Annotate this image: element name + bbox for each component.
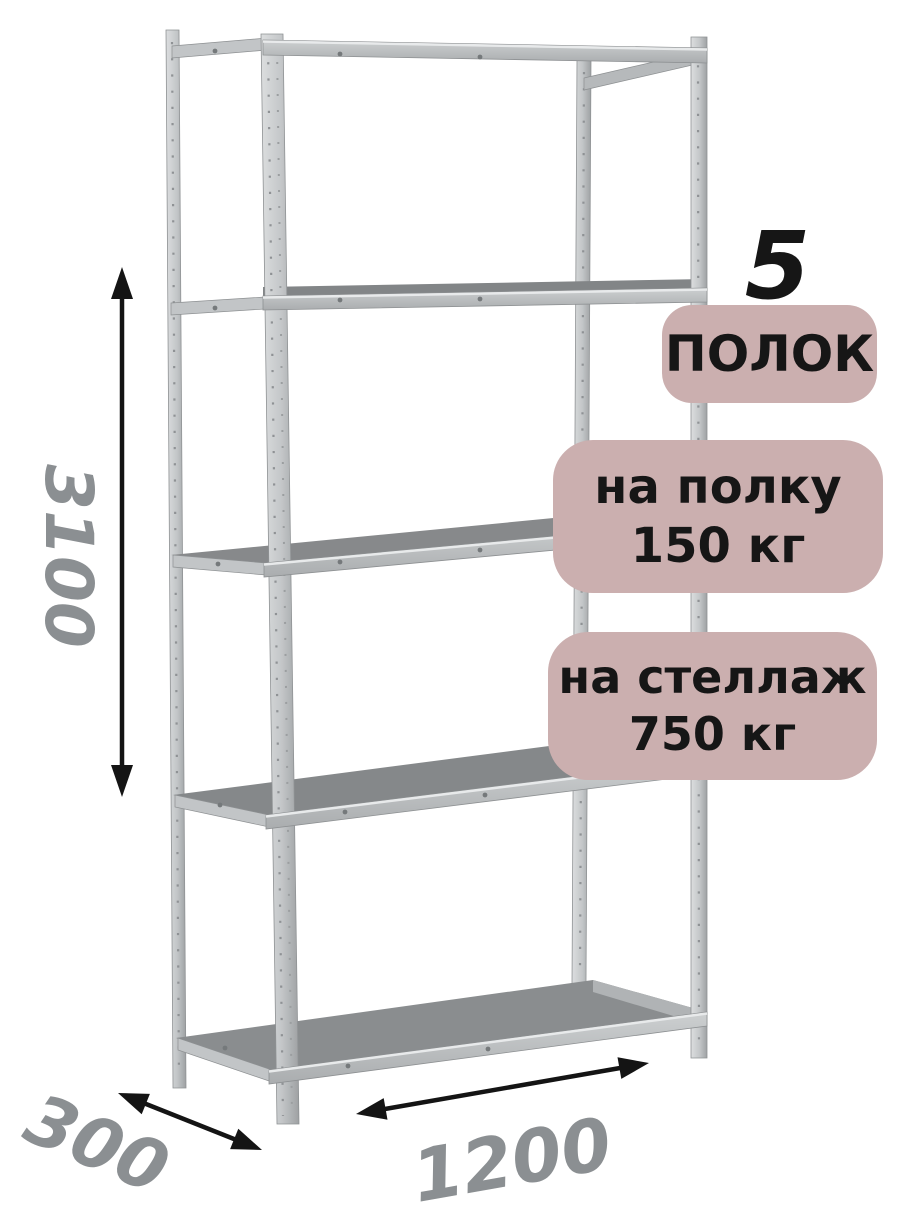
product-illustration: 5 ПОЛОК на полку 150 кг на стеллаж 750 к… [0, 0, 900, 1200]
front-left-post [261, 34, 299, 1124]
height-arrow [111, 267, 133, 797]
shelving-rack-illustration [0, 0, 900, 1200]
per-shelf-load-text: на полку [594, 458, 841, 517]
per-rack-load-badge: на стеллаж 750 кг [548, 632, 877, 780]
per-rack-load-text: на стеллаж [558, 649, 866, 706]
shelf-count-badge: ПОЛОК [662, 305, 877, 403]
shelf-count-number: 5 [725, 220, 830, 315]
shelf-1-beam [263, 40, 707, 63]
per-shelf-load-badge: на полку 150 кг [553, 440, 883, 593]
height-dimension-label: 3100 [29, 456, 109, 656]
per-rack-load-value: 750 кг [629, 706, 796, 763]
per-shelf-load-value: 150 кг [631, 517, 806, 576]
shelf-count-label: ПОЛОК [665, 325, 874, 383]
